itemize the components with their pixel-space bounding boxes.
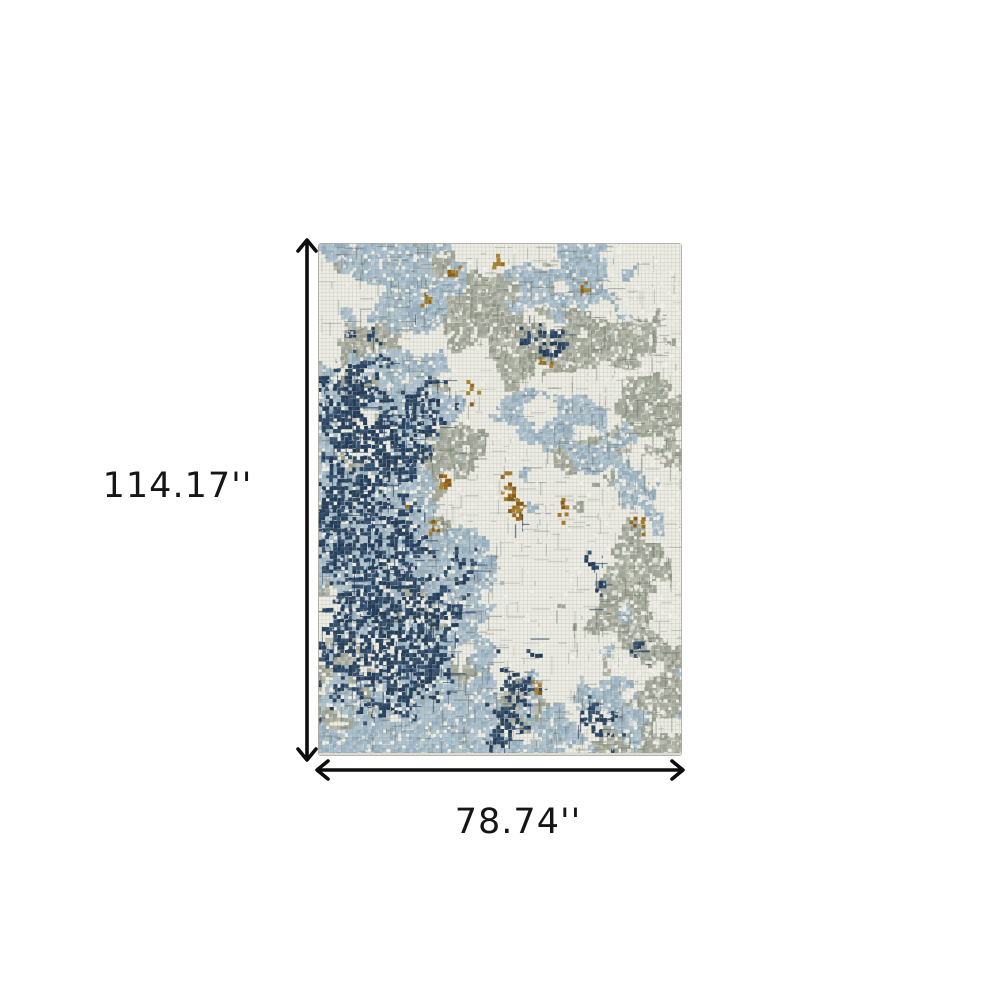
width-dimension-arrow <box>311 757 689 783</box>
rug-texture <box>318 243 682 756</box>
width-dimension-label: 78.74'' <box>368 802 668 842</box>
rug-photo <box>318 243 682 756</box>
product-dimension-image: 114.17'' 78.74'' <box>0 0 1000 1000</box>
height-dimension-label: 114.17'' <box>45 466 310 506</box>
